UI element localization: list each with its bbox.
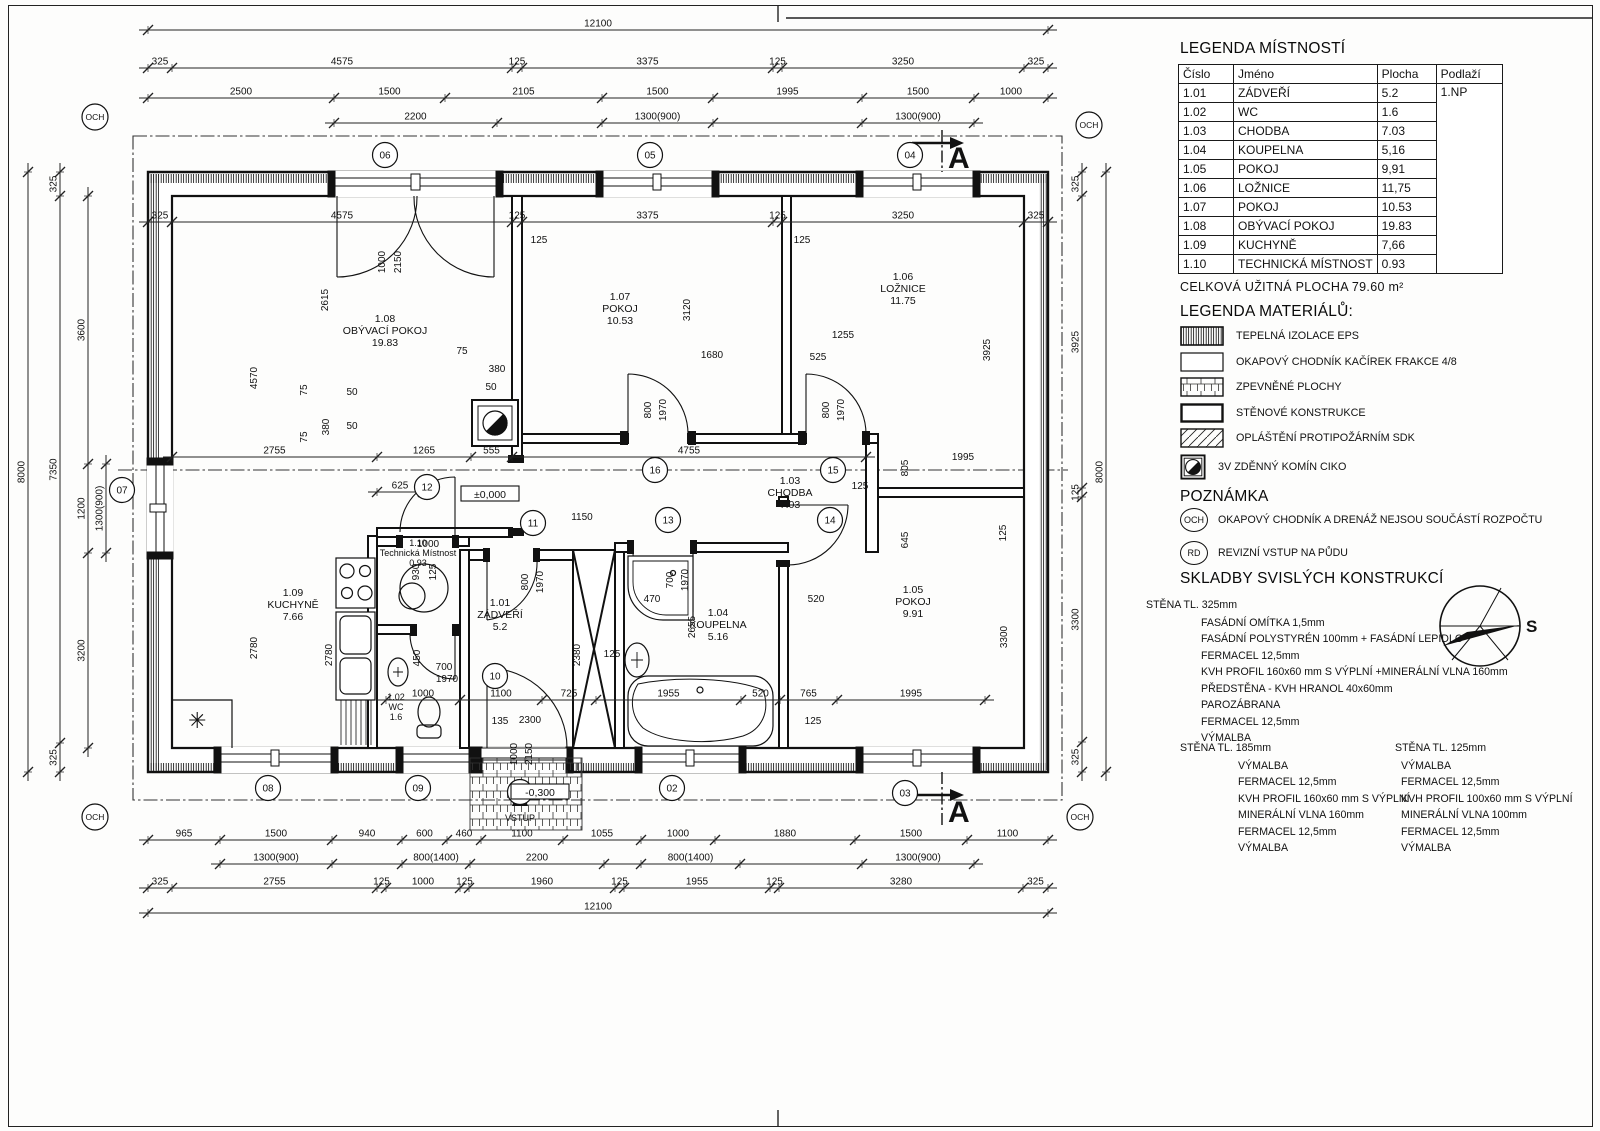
drawing-sheet: ✳ A A 1210032545751253375125325032525001… xyxy=(0,0,1600,1131)
sheet-marks xyxy=(0,0,1600,1131)
